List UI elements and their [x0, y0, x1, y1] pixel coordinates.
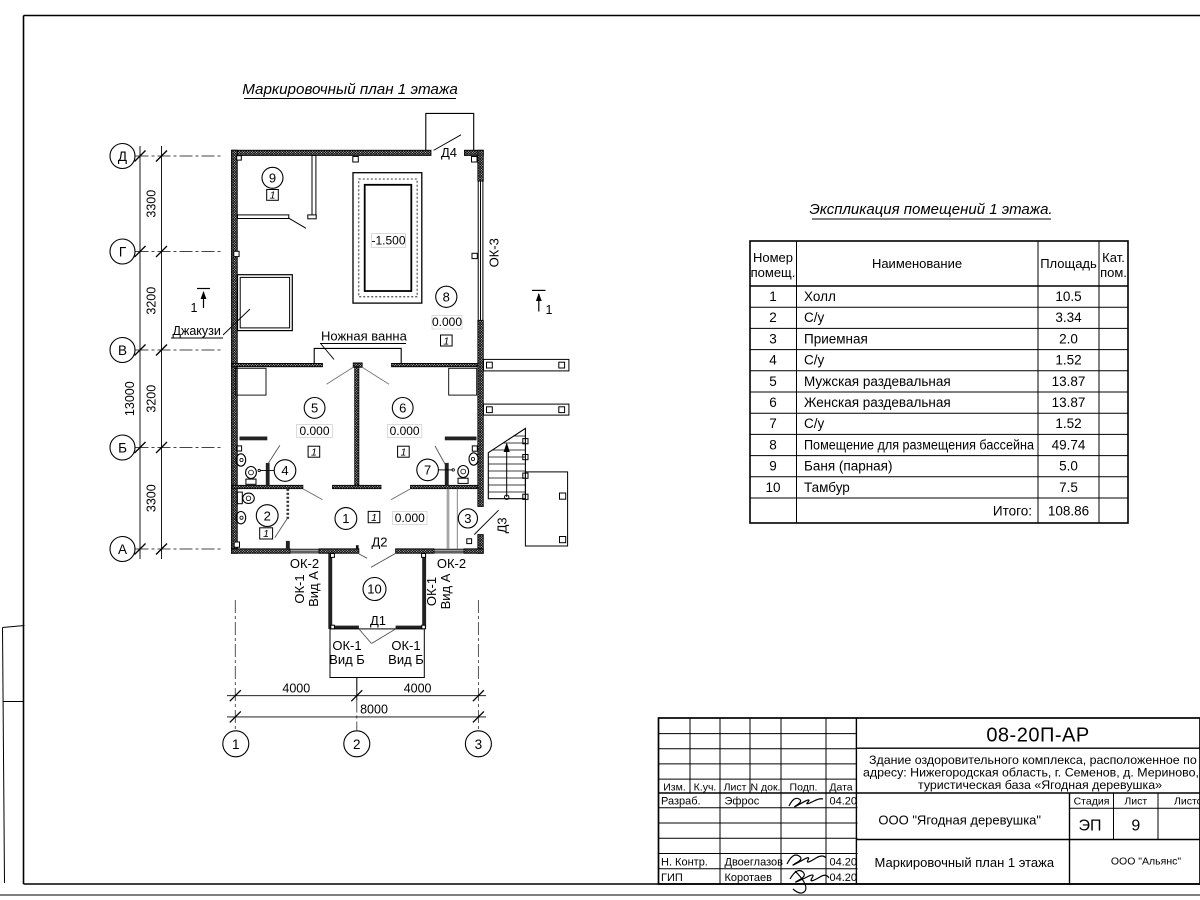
- svg-text:Вид А: Вид А: [438, 573, 453, 609]
- svg-text:Помещение для размещения бассе: Помещение для размещения бассейна: [804, 437, 1034, 452]
- svg-text:1: 1: [191, 301, 198, 315]
- svg-text:ОК-1: ОК-1: [292, 574, 307, 603]
- svg-text:Коротаев: Коротаев: [725, 872, 773, 884]
- svg-text:Вид Б: Вид Б: [329, 652, 365, 667]
- svg-text:С/у: С/у: [804, 353, 825, 368]
- svg-text:Лист: Лист: [724, 782, 747, 794]
- svg-text:Стадия: Стадия: [1074, 796, 1110, 808]
- svg-text:0.000: 0.000: [390, 424, 420, 438]
- svg-text:2: 2: [353, 737, 361, 752]
- svg-text:Разраб.: Разраб.: [661, 796, 701, 808]
- svg-text:С/у: С/у: [804, 310, 825, 325]
- svg-text:8: 8: [769, 437, 777, 452]
- svg-text:10: 10: [765, 480, 780, 495]
- svg-text:3.34: 3.34: [1055, 310, 1082, 325]
- svg-text:Тамбур: Тамбур: [804, 480, 850, 495]
- svg-text:ГИП: ГИП: [661, 872, 683, 884]
- svg-text:Изм.: Изм.: [663, 782, 686, 794]
- svg-text:4000: 4000: [282, 681, 310, 695]
- svg-text:1: 1: [342, 511, 349, 526]
- svg-text:туристическая база «Ягодная де: туристическая база «Ягодная деревушка»: [918, 778, 1162, 792]
- svg-text:0.000: 0.000: [432, 315, 462, 329]
- svg-text:5: 5: [311, 401, 318, 416]
- svg-text:С/у: С/у: [804, 416, 825, 431]
- svg-text:Мужская раздевальная: Мужская раздевальная: [804, 374, 951, 389]
- svg-text:ОК-3: ОК-3: [486, 238, 501, 267]
- svg-text:-1.500: -1.500: [371, 234, 405, 248]
- svg-text:2: 2: [769, 310, 777, 325]
- svg-text:Листов: Листов: [1174, 796, 1200, 808]
- svg-text:ОК-1: ОК-1: [424, 577, 439, 606]
- svg-text:1: 1: [311, 447, 317, 459]
- svg-text:Д: Д: [118, 149, 127, 164]
- svg-text:8000: 8000: [360, 703, 388, 717]
- svg-text:Д2: Д2: [371, 535, 387, 550]
- svg-text:Д3: Д3: [494, 517, 509, 533]
- svg-text:1: 1: [400, 447, 406, 459]
- svg-text:7.5: 7.5: [1059, 480, 1078, 495]
- svg-text:Маркировочный план 1 этажа: Маркировочный план 1 этажа: [875, 855, 1055, 870]
- svg-text:ЭП: ЭП: [1079, 818, 1102, 835]
- svg-text:9: 9: [769, 459, 777, 474]
- svg-text:49.74: 49.74: [1052, 437, 1086, 452]
- svg-text:Номер: Номер: [753, 250, 793, 265]
- svg-text:7: 7: [769, 416, 777, 431]
- svg-text:А: А: [118, 542, 127, 557]
- svg-text:Двоеглазов: Двоеглазов: [725, 857, 784, 869]
- svg-text:Итого:: Итого:: [993, 504, 1032, 519]
- svg-text:3300: 3300: [145, 190, 159, 218]
- svg-text:Холл: Холл: [804, 289, 836, 304]
- svg-text:3: 3: [769, 331, 777, 346]
- svg-text:В: В: [118, 343, 127, 358]
- svg-text:1: 1: [443, 335, 449, 347]
- svg-text:Дата: Дата: [829, 782, 852, 794]
- svg-text:Д4: Д4: [441, 145, 457, 160]
- svg-text:3: 3: [475, 737, 483, 752]
- svg-text:13000: 13000: [123, 381, 137, 416]
- svg-text:К.уч.: К.уч.: [694, 782, 717, 794]
- svg-text:Женская раздевальная: Женская раздевальная: [804, 395, 951, 410]
- svg-text:2.0: 2.0: [1059, 331, 1078, 346]
- svg-text:0.000: 0.000: [395, 511, 425, 525]
- svg-text:0.000: 0.000: [299, 424, 329, 438]
- svg-text:1: 1: [546, 303, 553, 317]
- svg-text:1: 1: [232, 737, 240, 752]
- svg-text:9: 9: [269, 171, 276, 186]
- svg-text:4: 4: [281, 463, 288, 478]
- svg-text:13.87: 13.87: [1052, 395, 1086, 410]
- svg-text:6: 6: [769, 395, 777, 410]
- svg-text:ОК-1: ОК-1: [391, 638, 420, 653]
- svg-text:8: 8: [443, 290, 450, 305]
- svg-text:3200: 3200: [145, 385, 159, 413]
- svg-text:Эфрос: Эфрос: [725, 796, 760, 808]
- svg-text:08-20П-АР: 08-20П-АР: [986, 725, 1089, 747]
- svg-text:1: 1: [263, 528, 269, 540]
- svg-text:1.52: 1.52: [1055, 416, 1081, 431]
- svg-text:108.86: 108.86: [1048, 504, 1089, 519]
- svg-text:5.0: 5.0: [1059, 459, 1078, 474]
- svg-text:ООО "Ягодная деревушка": ООО "Ягодная деревушка": [878, 813, 1041, 828]
- svg-text:2: 2: [264, 508, 271, 523]
- svg-text:помещ.: помещ.: [751, 265, 796, 280]
- svg-text:4: 4: [769, 353, 777, 368]
- svg-text:ОК-2: ОК-2: [437, 556, 466, 571]
- svg-text:Г: Г: [119, 245, 127, 260]
- svg-text:Баня (парная): Баня (парная): [804, 459, 892, 474]
- svg-text:5: 5: [769, 374, 777, 389]
- svg-text:Вид А: Вид А: [306, 571, 321, 607]
- svg-text:Приемная: Приемная: [804, 331, 868, 346]
- svg-text:Подп.: Подп.: [790, 782, 818, 794]
- svg-text:1: 1: [769, 289, 777, 304]
- svg-text:Б: Б: [118, 441, 127, 456]
- svg-text:Н. Контр.: Н. Контр.: [661, 857, 708, 869]
- svg-text:Вид Б: Вид Б: [388, 652, 424, 667]
- svg-text:Ножная ванна: Ножная ванна: [321, 329, 408, 344]
- svg-text:6: 6: [399, 401, 406, 416]
- svg-text:9: 9: [1131, 818, 1140, 835]
- svg-text:3: 3: [464, 511, 471, 526]
- svg-text:Кат.: Кат.: [1102, 250, 1125, 265]
- svg-text:3300: 3300: [145, 484, 159, 512]
- svg-text:04.20: 04.20: [830, 857, 858, 869]
- svg-text:ООО "Альянс": ООО "Альянс": [1111, 856, 1181, 868]
- svg-text:04.20: 04.20: [830, 872, 858, 884]
- svg-text:Д1: Д1: [370, 613, 386, 628]
- svg-text:Экспликация помещений 1 этажа.: Экспликация помещений 1 этажа.: [809, 201, 1052, 218]
- svg-text:пом.: пом.: [1100, 265, 1127, 280]
- svg-text:10: 10: [367, 582, 381, 597]
- svg-text:10.5: 10.5: [1055, 289, 1081, 304]
- svg-text:7: 7: [424, 463, 431, 478]
- svg-text:3200: 3200: [145, 287, 159, 315]
- svg-text:Лист: Лист: [1124, 796, 1147, 808]
- svg-text:Маркировочный план 1 этажа: Маркировочный план 1 этажа: [242, 81, 458, 98]
- svg-text:4000: 4000: [404, 681, 432, 695]
- svg-text:13.87: 13.87: [1052, 374, 1086, 389]
- svg-text:Наименование: Наименование: [872, 256, 962, 271]
- svg-text:1: 1: [371, 512, 377, 524]
- svg-text:Площадь: Площадь: [1040, 256, 1097, 271]
- svg-text:ОК-1: ОК-1: [332, 638, 361, 653]
- svg-text:1.52: 1.52: [1055, 353, 1081, 368]
- svg-text:ОК-2: ОК-2: [290, 556, 319, 571]
- svg-text:N док.: N док.: [751, 782, 781, 794]
- svg-text:1: 1: [270, 190, 276, 202]
- svg-text:04.20: 04.20: [830, 796, 858, 808]
- svg-text:Джакузи: Джакузи: [173, 324, 221, 338]
